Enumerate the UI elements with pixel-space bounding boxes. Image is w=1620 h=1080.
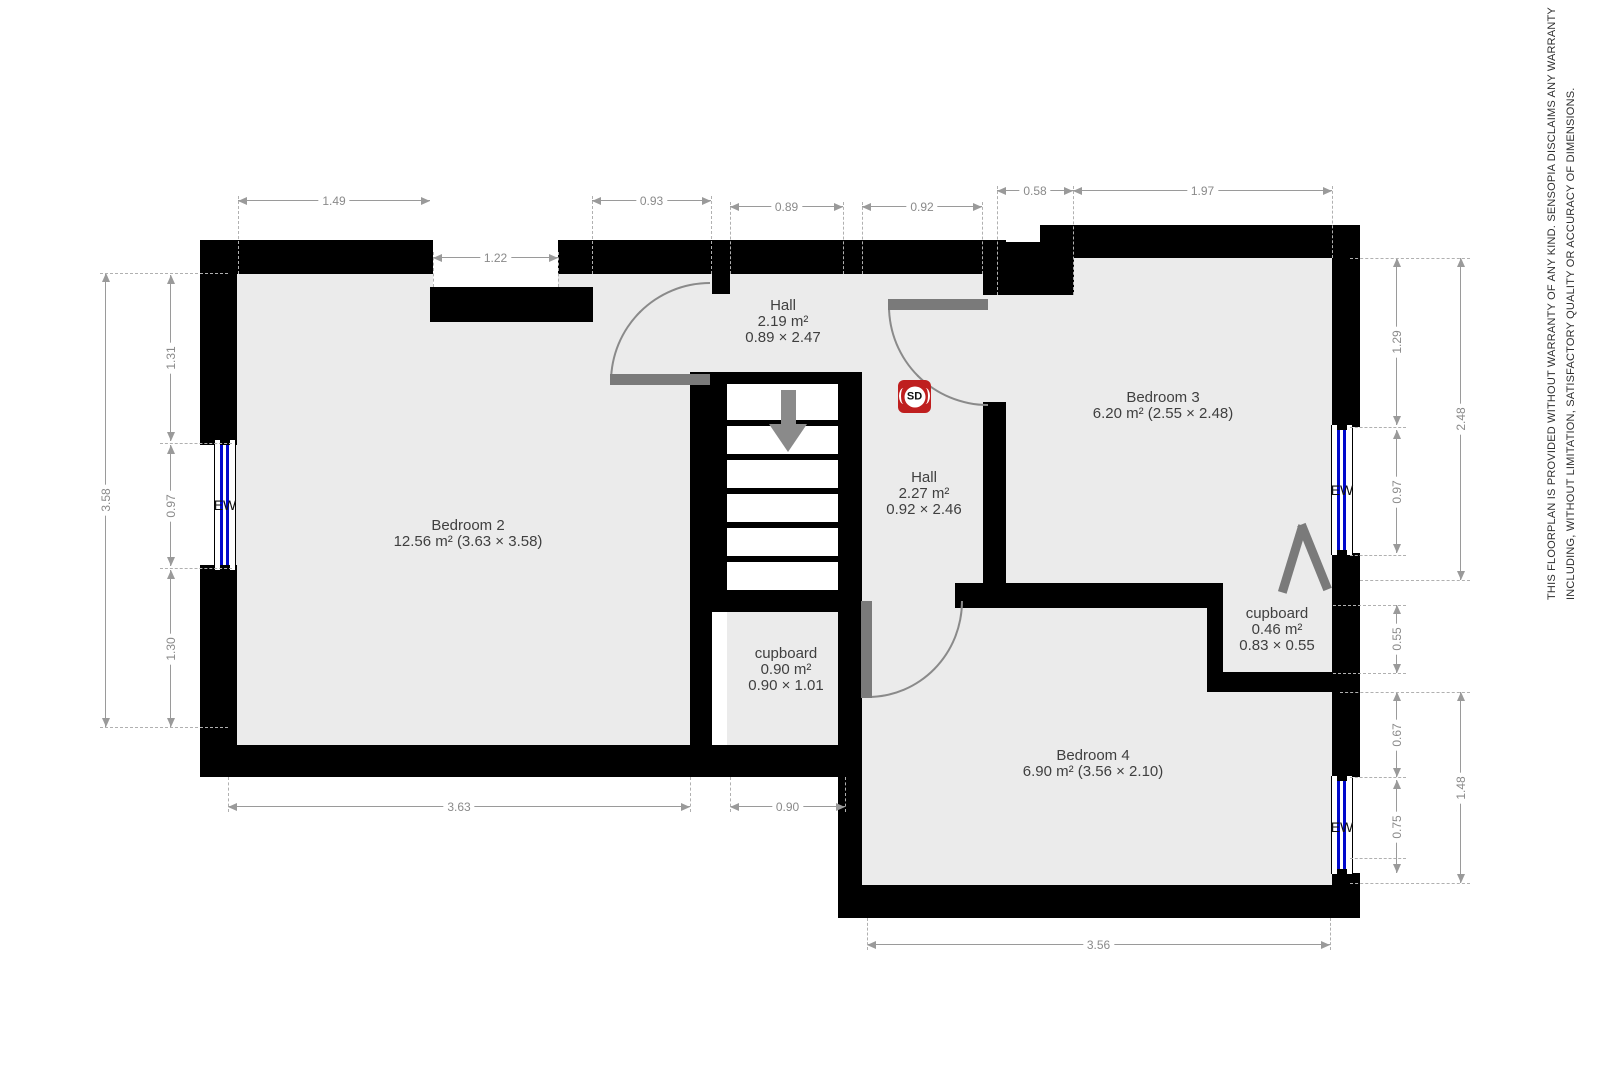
room-label: cupboard0.46 m²0.83 × 0.55 [1239,606,1314,654]
dimension-label: 1.97 [1187,184,1218,198]
extension-line [1360,580,1470,581]
dimension-label: 1.31 [164,342,178,373]
dimension-label: 1.49 [318,194,349,208]
extension-line [160,568,232,569]
dimension: 0.89 [730,202,843,211]
wall [430,287,593,322]
dimension-arrow [102,718,110,727]
dimension: 0.93 [592,196,711,205]
extension-line [100,727,228,728]
dimension-arrow [1073,187,1082,195]
room-label-line: cupboard [748,646,823,662]
extension-line [982,202,983,274]
room-label-line: cupboard [1239,606,1314,622]
extension-line [1333,605,1406,606]
dimension-arrow [702,197,711,205]
dimension-arrow [1457,571,1465,580]
room-label: Hall2.27 m²0.92 × 2.46 [886,470,961,518]
dimension-arrow [867,941,876,949]
room-label-line: 0.46 m² [1239,622,1314,638]
extension-line [558,252,559,287]
extension-line [1073,186,1074,295]
dimension-label: 3.56 [1083,938,1114,952]
dimension: 1.30 [166,570,175,727]
dimension: 0.58 [997,186,1073,195]
dimension-label: 1.22 [480,251,511,265]
dimension: 3.56 [867,940,1330,949]
window-label: EW [214,497,237,513]
extension-line [1350,555,1406,556]
dimension-arrow [167,275,175,284]
dimension: 0.90 [730,802,845,811]
dimension-arrow [834,203,843,211]
extension-line [1350,427,1406,428]
dimension-arrow [730,803,739,811]
room-label-line: Bedroom 3 [1093,390,1234,406]
dimension-arrow [1393,864,1401,873]
smoke-detector-circle: SD [904,386,925,407]
dimension-arrow [1457,874,1465,883]
wall [1332,225,1360,427]
wall [200,240,237,445]
stairs-tread-separator [727,454,838,460]
room-label-line: 2.27 m² [886,486,961,502]
dimension-arrow [1393,768,1401,777]
room-label-line: Hall [886,470,961,486]
dimension-arrow [1393,416,1401,425]
window-label: EW [1331,482,1354,498]
door-leaf [888,299,988,310]
door-leaf [610,374,710,385]
dimension: 3.58 [101,273,110,727]
dimension-arrow [730,203,739,211]
dimension-label: 3.63 [443,800,474,814]
extension-line [730,777,731,812]
dimension-arrow [1321,941,1330,949]
extension-line [433,252,434,287]
dimension-label: 0.75 [1390,811,1404,842]
dimension-arrow [167,718,175,727]
dimension-label: 0.55 [1390,623,1404,654]
wall [1207,672,1333,692]
extension-line [711,196,712,274]
dimension: 1.22 [433,253,558,262]
room-label: cupboard0.90 m²0.90 × 1.01 [748,646,823,694]
dimension-arrow [1457,692,1465,701]
wall [690,372,712,777]
dimension-arrow [167,445,175,454]
dimension-label: 0.97 [1390,476,1404,507]
dimension-arrow [1393,664,1401,673]
dimension: 1.29 [1392,258,1401,425]
extension-line [730,202,731,274]
room-label-line: 0.90 m² [748,662,823,678]
extension-line [997,186,998,295]
dimension-arrow [681,803,690,811]
extension-line [843,202,844,274]
smoke-detector-icon: SD [898,380,931,413]
floorplan-canvas: EWEWEWSDBedroom 212.56 m² (3.63 × 3.58)H… [0,0,1620,1080]
room-label: Bedroom 46.90 m² (3.56 × 2.10) [1023,748,1164,780]
extension-line [592,196,593,274]
dimension-arrow [549,254,558,262]
window-cap [1337,776,1347,781]
dimension: 1.48 [1456,692,1465,883]
dimension-arrow [1323,187,1332,195]
disclaimer-text-line-2: INCLUDING, WITHOUT LIMITATION, SATISFACT… [1565,87,1577,600]
extension-line [1333,673,1406,674]
extension-line [1350,858,1406,859]
extension-line [1350,883,1470,884]
stairs-direction-arrow-shaft [781,390,796,424]
extension-line [867,918,868,950]
room-label-line: 0.89 × 2.47 [745,330,820,346]
dimension-arrow [1393,692,1401,701]
room-label-line: Bedroom 2 [394,518,543,534]
disclaimer-text-line-1: THIS FLOORPLAN IS PROVIDED WITHOUT WARRA… [1546,7,1558,600]
dimension-label: 0.67 [1390,719,1404,750]
extension-line [1332,186,1333,258]
room-label: Hall2.19 m²0.89 × 2.47 [745,298,820,346]
dimension-label: 0.92 [906,200,937,214]
extension-line [862,202,863,274]
dimension-label: 0.90 [772,800,803,814]
dimension: 0.97 [166,445,175,566]
wall [955,583,1223,608]
room-label-line: 2.19 m² [745,314,820,330]
dimension-label: 1.29 [1390,326,1404,357]
room-label-line: Bedroom 4 [1023,748,1164,764]
extension-line [1330,918,1331,950]
extension-line [690,777,691,812]
dimension-label: 0.89 [771,200,802,214]
door-leaf [861,601,872,698]
wall [838,885,1360,918]
dimension: 1.49 [238,196,430,205]
extension-line [228,777,229,812]
dimension-arrow [1393,430,1401,439]
extension-line [160,443,232,444]
dimension-arrow [167,432,175,441]
dimension-arrow [973,203,982,211]
dimension-arrow [1393,258,1401,267]
wall [712,372,727,612]
wall [558,240,1006,274]
dimension-arrow [238,197,247,205]
wall [1332,553,1360,777]
wall [983,402,1006,583]
dimension-arrow [1064,187,1073,195]
dimension-arrow [862,203,871,211]
room-label: Bedroom 212.56 m² (3.63 × 3.58) [394,518,543,550]
stairs-tread-separator [727,488,838,494]
wall [712,274,730,294]
room-label-line: 6.90 m² (3.56 × 2.10) [1023,764,1164,780]
window-cap [1337,425,1347,430]
stairs-direction-arrow-head [769,424,807,452]
dimension-arrow [997,187,1006,195]
wall [1040,225,1074,295]
dimension-arrow [102,273,110,282]
dimension-label: 1.48 [1454,772,1468,803]
dimension: 2.48 [1456,258,1465,580]
dimension-arrow [1457,258,1465,267]
dimension-label: 1.30 [164,633,178,664]
dimension-label: 0.93 [636,194,667,208]
window-label: EW [1331,819,1354,835]
room-label-line: 0.83 × 0.55 [1239,638,1314,654]
dimension-arrow [167,557,175,566]
dimension: 0.55 [1392,605,1401,673]
wall [200,745,862,777]
dimension-arrow [1393,780,1401,789]
dimension-label: 0.58 [1019,184,1050,198]
extension-line [1340,692,1470,693]
dimension-arrow [167,570,175,579]
dimension: 0.75 [1392,780,1401,873]
dimension-arrow [836,803,845,811]
dimension-arrow [433,254,442,262]
dimension: 3.63 [228,802,690,811]
room-label-line: 0.92 × 2.46 [886,502,961,518]
window-cap [1337,869,1347,874]
extension-line [100,273,228,274]
wall [1074,225,1360,258]
wall [712,372,838,384]
dimension: 1.97 [1073,186,1332,195]
room-label: Bedroom 36.20 m² (2.55 × 2.48) [1093,390,1234,422]
wall [838,583,862,918]
dimension-arrow [421,197,430,205]
dimension-arrow [228,803,237,811]
stairs-tread-separator [727,522,838,528]
dimension-label: 0.97 [164,490,178,521]
dimension-label: 3.58 [99,484,113,515]
extension-line [238,196,239,274]
extension-line [1350,777,1406,778]
extension-line [845,777,846,812]
dimension: 0.67 [1392,692,1401,777]
dimension: 0.97 [1392,430,1401,553]
dimension-arrow [592,197,601,205]
extension-line [1350,258,1470,259]
dimension-arrow [1393,544,1401,553]
dimension-label: 2.48 [1454,403,1468,434]
dimension: 1.31 [166,275,175,441]
dimension-arrow [1393,605,1401,614]
room-label-line: 0.90 × 1.01 [748,678,823,694]
dimension: 0.92 [862,202,982,211]
room-label-line: Hall [745,298,820,314]
stairs-tread-separator [727,556,838,562]
window-cap [1337,550,1347,555]
room-label-line: 6.20 m² (2.55 × 2.48) [1093,406,1234,422]
room-label-line: 12.56 m² (3.63 × 3.58) [394,534,543,550]
